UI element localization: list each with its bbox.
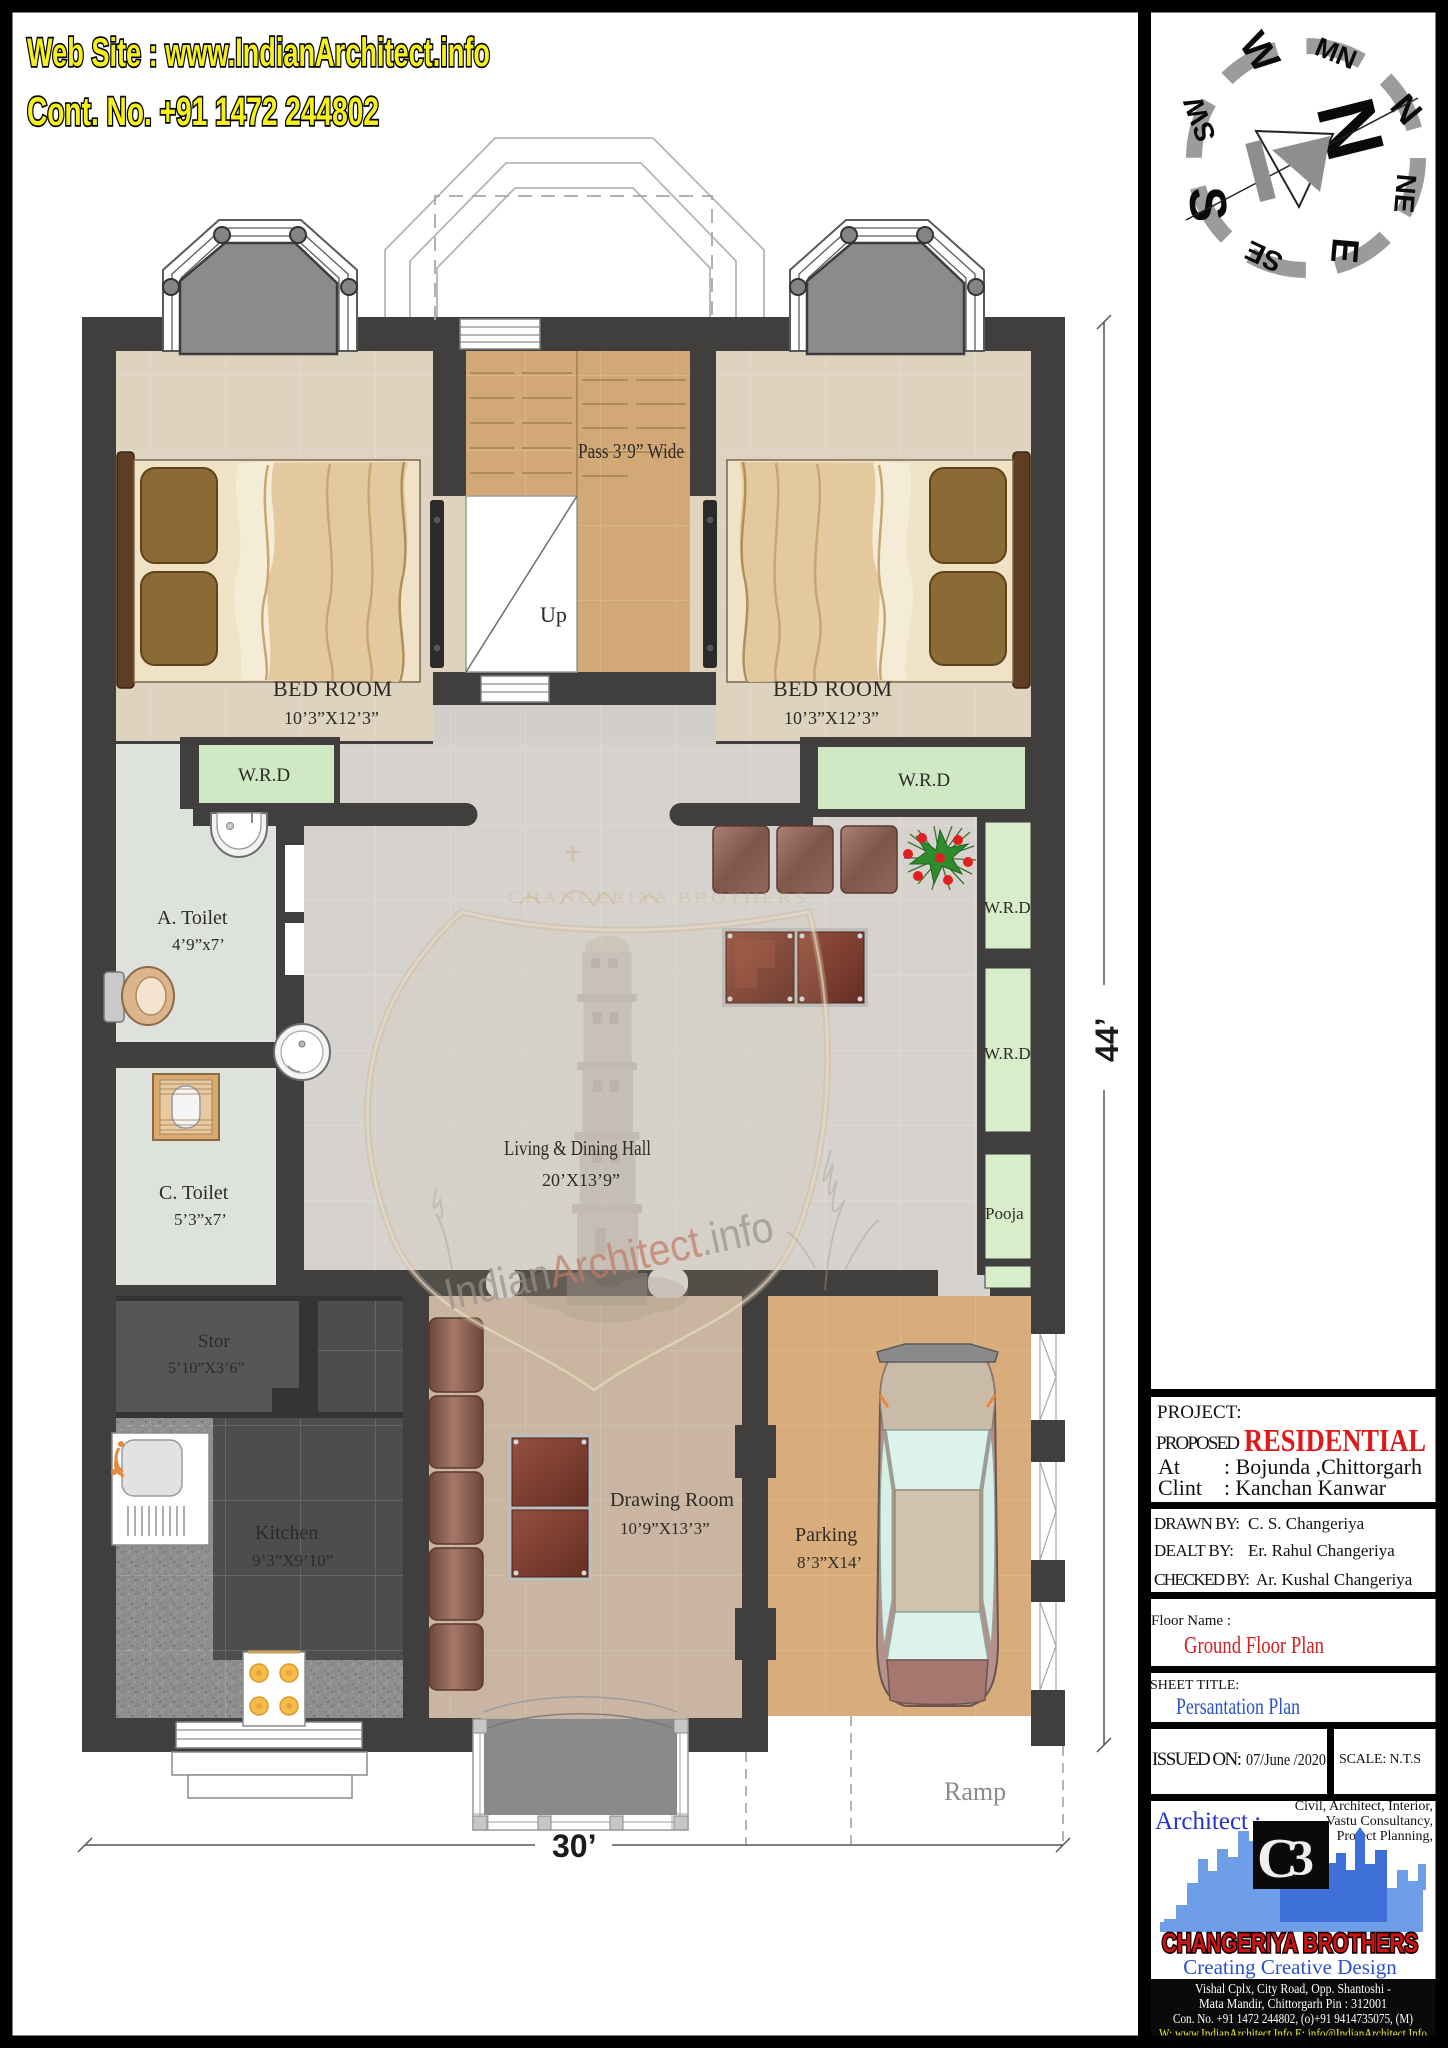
svg-text:Pooja: Pooja (985, 1204, 1024, 1223)
svg-text:Living & Dining Hall: Living & Dining Hall (504, 1136, 651, 1160)
svg-text:5’3”x7’: 5’3”x7’ (174, 1210, 227, 1229)
svg-text:C. Toilet: C. Toilet (159, 1182, 229, 1204)
svg-text:NE: NE (1388, 173, 1422, 214)
svg-text:Project Planning,: Project Planning, (1337, 1829, 1433, 1844)
svg-text:Ramp: Ramp (944, 1777, 1006, 1806)
svg-text:W.R.D: W.R.D (238, 765, 290, 786)
svg-text:W.R.D: W.R.D (898, 770, 950, 791)
svg-text:Web Site : www.IndianArchitect: Web Site : www.IndianArchitect.info (27, 31, 490, 75)
svg-text:Er. Rahul Changeriya: Er. Rahul Changeriya (1248, 1541, 1395, 1560)
svg-text:W.R.D: W.R.D (984, 1044, 1031, 1063)
svg-text:Parking: Parking (795, 1524, 857, 1546)
svg-text:RESIDENTIAL: RESIDENTIAL (1244, 1422, 1426, 1458)
svg-text:30’: 30’ (552, 1828, 596, 1864)
svg-text:Kitchen: Kitchen (255, 1522, 318, 1544)
svg-text:Persantation Plan: Persantation Plan (1176, 1694, 1300, 1719)
svg-text:10’3”X12’3”: 10’3”X12’3” (284, 708, 379, 728)
svg-text:DEALT BY:: DEALT BY: (1154, 1541, 1234, 1560)
svg-text:A. Toilet: A. Toilet (157, 907, 228, 929)
svg-text:Stor: Stor (198, 1331, 230, 1352)
svg-text:44’: 44’ (1089, 1018, 1125, 1062)
svg-text:Vastu Consultancy,: Vastu Consultancy, (1326, 1814, 1433, 1829)
svg-text:9’3”X9’10”: 9’3”X9’10” (252, 1551, 333, 1570)
svg-text:Pass 3’9” Wide: Pass 3’9” Wide (578, 439, 684, 463)
svg-text:Ar. Kushal Changeriya: Ar. Kushal Changeriya (1256, 1570, 1413, 1589)
svg-text:5’10”X3’6”: 5’10”X3’6” (168, 1360, 244, 1377)
svg-text:DRAWN BY:: DRAWN BY: (1154, 1514, 1240, 1533)
svg-text:Architect :-: Architect :- (1155, 1808, 1270, 1835)
svg-text:SHEET TITLE:: SHEET TITLE: (1150, 1678, 1239, 1693)
svg-text:Ground Floor Plan: Ground Floor Plan (1184, 1633, 1324, 1659)
svg-text:Civil, Architect, Interior,: Civil, Architect, Interior, (1295, 1799, 1433, 1814)
svg-text:CHECKED BY:: CHECKED BY: (1154, 1570, 1250, 1589)
svg-text:10’9”X13’3”: 10’9”X13’3” (620, 1519, 710, 1538)
svg-text:CHANGERIYA BROTHERS: CHANGERIYA BROTHERS (508, 888, 808, 907)
svg-text:8’3”X14’: 8’3”X14’ (797, 1553, 862, 1572)
svg-text:PROPOSED: PROPOSED (1156, 1433, 1240, 1454)
svg-text:CHANGERIYA BROTHERS: CHANGERIYA BROTHERS (1162, 1928, 1418, 1958)
svg-text:BED ROOM: BED ROOM (773, 676, 893, 701)
svg-text:Up: Up (540, 602, 567, 627)
svg-text:BED ROOM: BED ROOM (273, 676, 393, 701)
svg-text:Creating Creative Design: Creating Creative Design (1183, 1955, 1397, 1979)
svg-text:PROJECT:: PROJECT: (1157, 1402, 1242, 1423)
svg-text:SCALE: N.T.S: SCALE: N.T.S (1339, 1752, 1421, 1767)
svg-text:S: S (1177, 184, 1238, 224)
svg-text:Cont. No. +91 1472 244802: Cont. No. +91 1472 244802 (27, 90, 379, 134)
svg-text:W.R.D: W.R.D (984, 898, 1031, 917)
svg-text:20’X13’9”: 20’X13’9” (542, 1170, 620, 1190)
svg-text:E: E (1322, 236, 1366, 265)
svg-text:Drawing Room: Drawing Room (610, 1489, 734, 1511)
svg-text:07/June /2020: 07/June /2020 (1246, 1750, 1326, 1769)
svg-text:C. S. Changeriya: C. S. Changeriya (1248, 1514, 1365, 1533)
svg-text:Clint: Clint (1158, 1475, 1202, 1500)
svg-text:4’9”x7’: 4’9”x7’ (172, 935, 225, 954)
svg-text:Con. No. +91 1472 244802, (o)+: Con. No. +91 1472 244802, (o)+91 9414735… (1173, 2011, 1413, 2026)
svg-text:Mata Mandir, Chittorgarh Pin :: Mata Mandir, Chittorgarh Pin : 312001 (1199, 1996, 1387, 2011)
svg-text:ISSUED ON:: ISSUED ON: (1152, 1749, 1242, 1770)
svg-text:10’3”X12’3”: 10’3”X12’3” (784, 708, 879, 728)
svg-text:3: 3 (1289, 1829, 1314, 1885)
svg-text:Floor Name :: Floor Name : (1151, 1613, 1231, 1629)
svg-text:: Kanchan Kanwar: : Kanchan Kanwar (1224, 1475, 1387, 1500)
svg-text:Vishal Cplx, City Road, Opp. S: Vishal Cplx, City Road, Opp. Shantoshi - (1195, 1981, 1391, 1996)
